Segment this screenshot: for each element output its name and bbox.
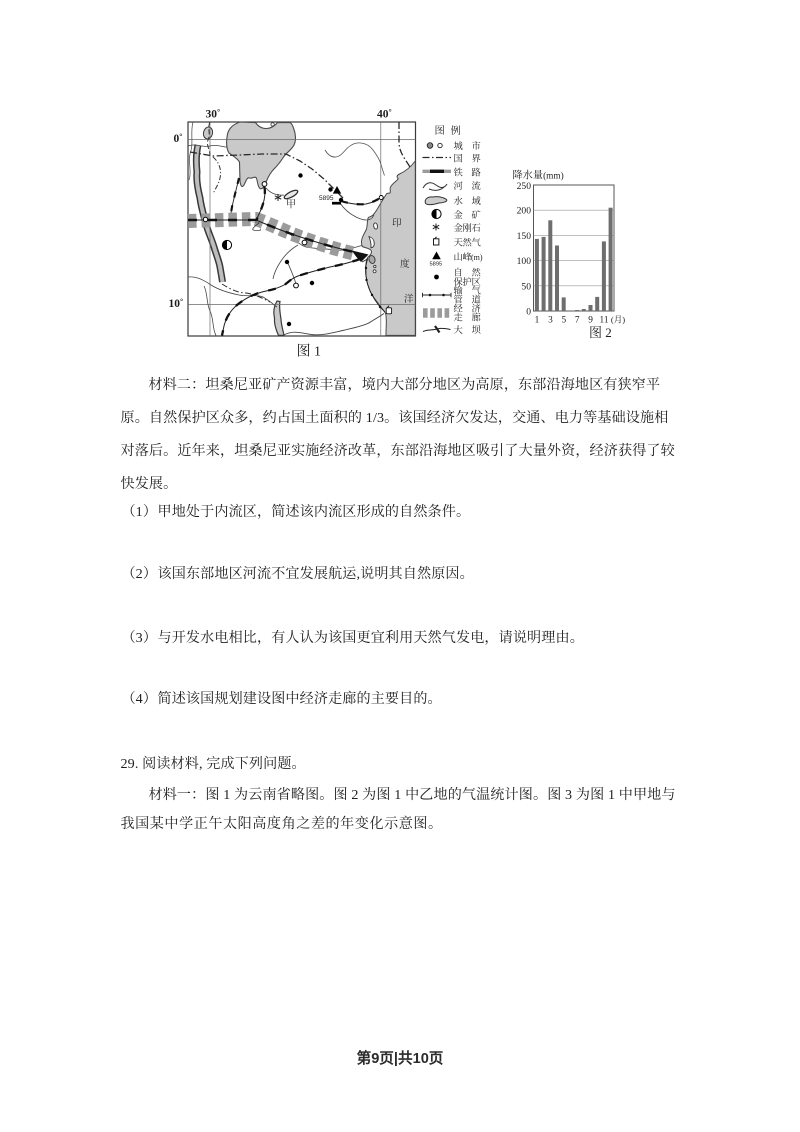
svg-text:金刚石: 金刚石 (454, 222, 481, 234)
svg-text:经济: 经济 (454, 302, 481, 314)
svg-text:3: 3 (548, 316, 553, 326)
svg-text:5895: 5895 (319, 195, 334, 202)
svg-text:50: 50 (521, 281, 531, 292)
svg-text:铁路: 铁路 (454, 166, 482, 178)
svg-text:甲: 甲 (286, 199, 296, 211)
svg-text:降水量(mm): 降水量(mm) (513, 169, 564, 182)
svg-text:图 2: 图 2 (589, 325, 612, 340)
svg-text:10°: 10° (169, 297, 184, 310)
svg-text:走廊: 走廊 (454, 312, 481, 324)
svg-text:天然气: 天然气 (454, 236, 482, 248)
svg-text:150: 150 (517, 231, 532, 242)
svg-text:河流: 河流 (454, 180, 481, 192)
svg-text:0°: 0° (174, 132, 183, 145)
svg-text:250: 250 (517, 181, 532, 192)
svg-text:7: 7 (575, 316, 580, 326)
svg-text:0: 0 (526, 307, 531, 318)
svg-text:100: 100 (517, 256, 532, 267)
svg-text:大坝: 大坝 (454, 324, 482, 336)
svg-text:水域: 水域 (454, 195, 482, 207)
svg-text:(月): (月) (611, 315, 625, 325)
svg-text:9: 9 (588, 316, 593, 326)
svg-text:30°: 30° (206, 108, 221, 121)
svg-text:图例: 图例 (435, 124, 461, 137)
svg-text:图 1: 图 1 (297, 344, 322, 360)
svg-text:国界: 国界 (454, 154, 481, 165)
svg-text:40°: 40° (377, 108, 392, 121)
svg-text:自然: 自然 (454, 267, 482, 279)
svg-text:洋: 洋 (404, 293, 414, 305)
svg-text:乙: 乙 (252, 222, 262, 234)
svg-text:1: 1 (535, 316, 540, 326)
svg-text:11: 11 (600, 316, 609, 326)
svg-text:200: 200 (517, 206, 532, 217)
svg-text:5895: 5895 (430, 262, 443, 268)
svg-text:山峰(m): 山峰(m) (454, 251, 483, 263)
svg-text:5: 5 (561, 316, 566, 326)
svg-text:印: 印 (392, 217, 402, 229)
svg-text:度: 度 (400, 258, 410, 270)
svg-text:城市: 城市 (454, 140, 481, 152)
svg-text:金矿: 金矿 (454, 209, 481, 221)
